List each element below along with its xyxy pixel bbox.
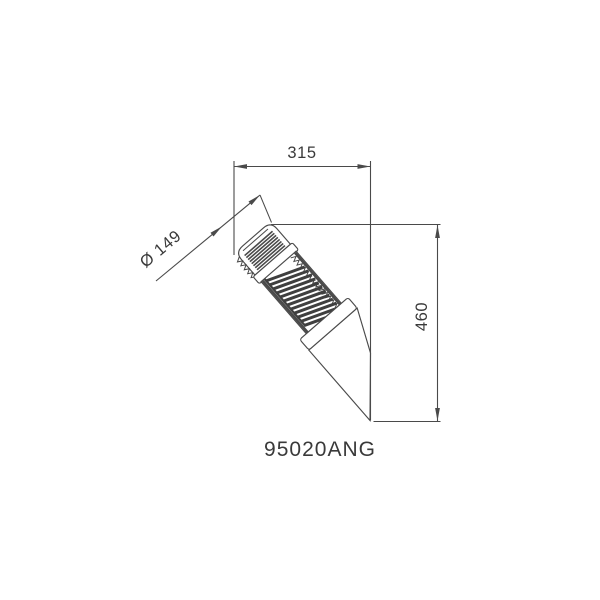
arrow-down-icon — [435, 408, 440, 421]
arrow-right-icon — [358, 164, 371, 169]
dimension-diameter-label: Ø 149 — [137, 227, 185, 272]
arrow-left-icon — [234, 164, 247, 169]
technical-drawing-page: 315 Ø 149 460 95020ANG — [0, 0, 600, 600]
fixture — [229, 216, 371, 420]
dimension-height-label: 460 — [413, 302, 431, 331]
fixture-technical-drawing: 315 Ø 149 460 95020ANG — [0, 0, 600, 600]
dimension-width-label: 315 — [287, 144, 316, 162]
extension-line-diameter — [260, 195, 272, 223]
arrow-up-icon — [435, 225, 440, 238]
product-code: 95020ANG — [264, 438, 376, 461]
